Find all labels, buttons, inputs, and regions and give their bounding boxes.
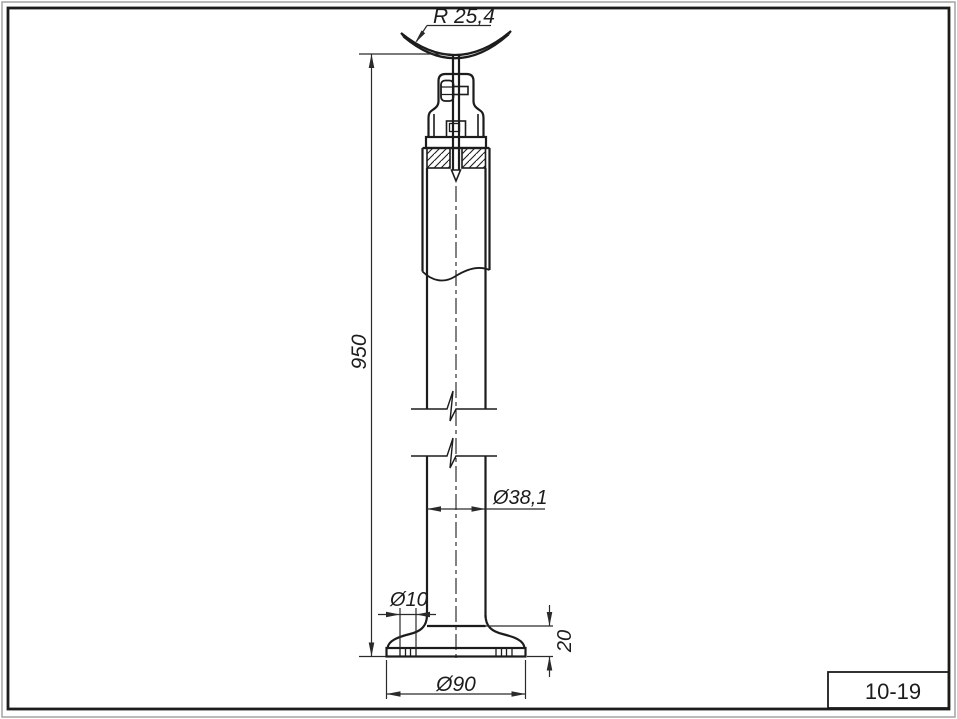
dim-base-height: 20 (486, 605, 577, 677)
part-number-label: 10-19 (865, 679, 921, 704)
base-skirt-right (486, 615, 525, 648)
tube-cap (426, 137, 486, 168)
dim-overall-height: 950 (348, 54, 450, 657)
drawing-sheet: 10-19 (0, 0, 957, 719)
dimensions: 950 R 25,4 Ø38,1 Ø10 (348, 5, 576, 699)
base-holes-right (496, 648, 512, 657)
saddle-outer-arc (401, 31, 511, 55)
dim-base-diameter-label: Ø90 (435, 673, 476, 696)
bracket-outline (429, 74, 484, 137)
clamp-bracket (429, 74, 484, 137)
dim-hole-diameter-label: Ø10 (389, 589, 428, 611)
cap-plate (426, 137, 486, 148)
dim-tube-diameter-label: Ø38,1 (492, 487, 547, 509)
base-holes-left (400, 648, 416, 657)
dim-height-arrow-top (369, 54, 375, 68)
dim-base-dia-arrow-left (387, 691, 401, 697)
title-block: 10-19 (828, 672, 949, 708)
base-skirt-left (388, 615, 428, 648)
bracket-inner-walls (434, 114, 478, 137)
cap-hatch-right (462, 148, 486, 168)
stem-bolt-tip (452, 170, 461, 181)
clamp-nut (441, 81, 454, 102)
dim-height-arrow-bottom (369, 643, 375, 657)
dim-base-diameter: Ø90 (387, 660, 526, 699)
dim-radius-arrow (415, 30, 425, 43)
break-line-lower (411, 438, 497, 468)
drawing-canvas: 10-19 (0, 0, 957, 719)
dim-tube-dia-arrow-right (472, 506, 486, 512)
dim-hole-arrow-left (386, 612, 400, 618)
saddle-edge-caps (401, 31, 511, 37)
dim-base-height-arrow-top (547, 612, 553, 626)
break-line-upper (411, 391, 497, 421)
dim-hole-arrow-right (416, 612, 430, 618)
clamp-nut-facets (441, 87, 454, 95)
dim-overall-height-label: 950 (348, 334, 371, 369)
dim-tube-dia-arrow-left (427, 506, 441, 512)
cap-hatch-left (427, 148, 450, 168)
dim-base-dia-arrow-right (512, 691, 526, 697)
frame-inner-border (8, 8, 949, 709)
dim-tube-diameter: Ø38,1 (427, 487, 547, 512)
inner-tube-walls-upper (427, 168, 486, 409)
clamp-bolt-shaft (453, 87, 468, 95)
pipe-stand-figure (387, 31, 526, 662)
dim-base-height-label: 20 (554, 630, 576, 653)
dim-saddle-radius-label: R 25,4 (433, 5, 495, 28)
dim-saddle-radius: R 25,4 (415, 5, 495, 43)
dim-base-height-arrow-bottom (547, 657, 553, 671)
